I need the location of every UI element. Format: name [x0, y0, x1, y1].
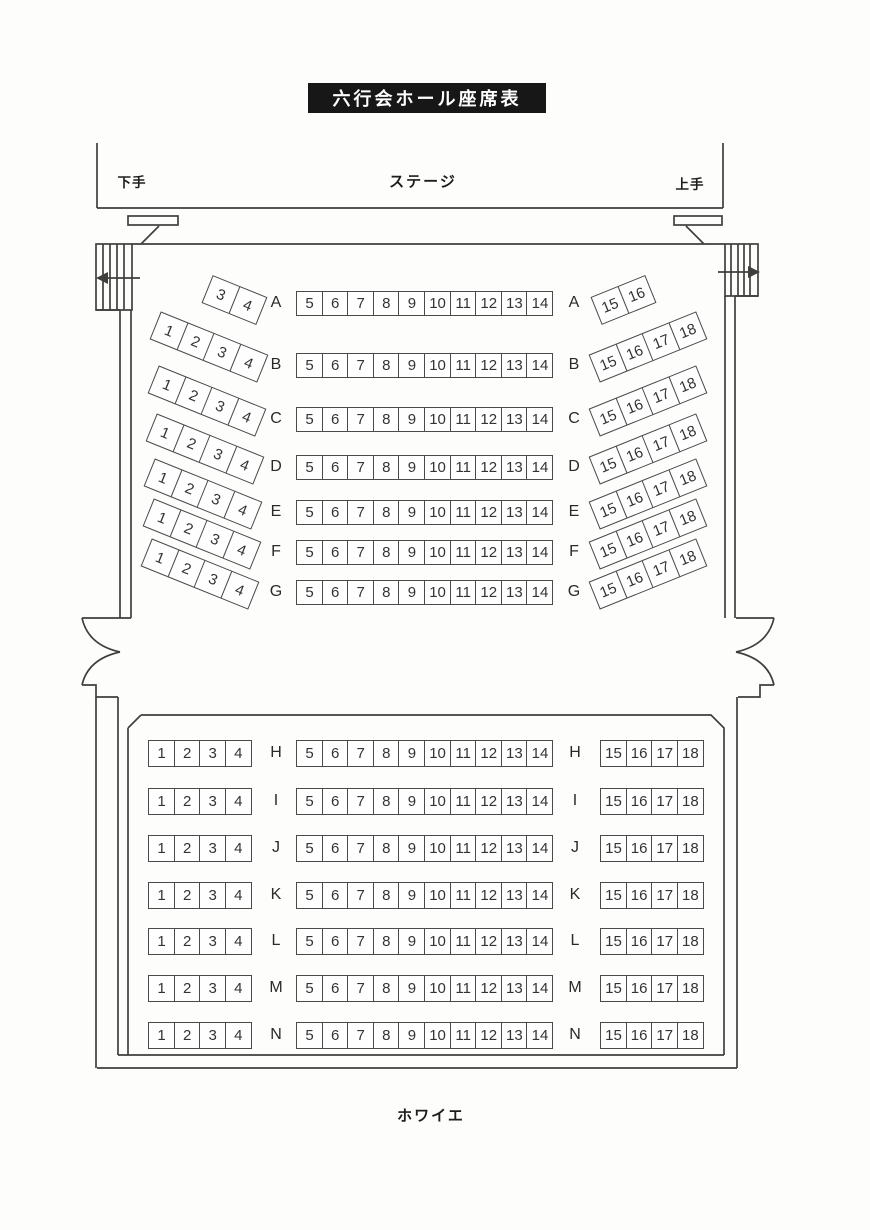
seat-D14: 14: [526, 455, 553, 480]
seat-K13: 13: [501, 882, 528, 909]
front-row-E-center-block: 567891011121314: [296, 500, 553, 525]
seat-E14: 14: [526, 500, 553, 525]
back-row-M-right-block: 15161718: [600, 975, 704, 1002]
seat-L10: 10: [424, 928, 451, 955]
seat-G6: 6: [322, 580, 349, 605]
seat-D9: 9: [398, 455, 425, 480]
back-row-N-left-block: 1234: [148, 1022, 252, 1049]
seat-N17: 17: [651, 1022, 678, 1049]
seat-M12: 12: [475, 975, 502, 1002]
seat-G5: 5: [296, 580, 323, 605]
seat-M3: 3: [199, 975, 226, 1002]
seat-G13: 13: [501, 580, 528, 605]
seat-B9: 9: [398, 353, 425, 378]
seat-J15: 15: [600, 835, 627, 862]
seat-I17: 17: [651, 788, 678, 815]
seat-K9: 9: [398, 882, 425, 909]
seat-L7: 7: [347, 928, 374, 955]
seat-M13: 13: [501, 975, 528, 1002]
seat-K4: 4: [225, 882, 252, 909]
seat-K17: 17: [651, 882, 678, 909]
seat-J9: 9: [398, 835, 425, 862]
front-row-B-center-block: 567891011121314: [296, 353, 553, 378]
back-row-H-left-block: 1234: [148, 740, 252, 767]
page-title: 六行会ホール座席表: [308, 83, 546, 113]
seat-K2: 2: [174, 882, 201, 909]
seat-B10: 10: [424, 353, 451, 378]
seat-C6: 6: [322, 407, 349, 432]
seat-M17: 17: [651, 975, 678, 1002]
row-label-H-left: H: [270, 744, 282, 762]
seat-N11: 11: [450, 1022, 477, 1049]
seat-B13: 13: [501, 353, 528, 378]
seat-H6: 6: [322, 740, 349, 767]
seat-G14: 14: [526, 580, 553, 605]
seat-G8: 8: [373, 580, 400, 605]
seat-E10: 10: [424, 500, 451, 525]
seat-F7: 7: [347, 540, 374, 565]
seat-E5: 5: [296, 500, 323, 525]
seat-K3: 3: [199, 882, 226, 909]
row-label-N-right: N: [569, 1026, 581, 1044]
seat-A5: 5: [296, 291, 323, 316]
seat-I1: 1: [148, 788, 175, 815]
seat-E6: 6: [322, 500, 349, 525]
seat-G11: 11: [450, 580, 477, 605]
row-label-B-right: B: [569, 356, 580, 374]
seat-I3: 3: [199, 788, 226, 815]
seat-G10: 10: [424, 580, 451, 605]
seat-L9: 9: [398, 928, 425, 955]
seat-F9: 9: [398, 540, 425, 565]
foyer-label: ホワイエ: [397, 1105, 465, 1126]
stairs-left: [96, 244, 140, 310]
back-row-J-center-block: 567891011121314: [296, 835, 553, 862]
seat-J10: 10: [424, 835, 451, 862]
seat-K6: 6: [322, 882, 349, 909]
seat-J17: 17: [651, 835, 678, 862]
seat-D11: 11: [450, 455, 477, 480]
seat-A10: 10: [424, 291, 451, 316]
seat-L5: 5: [296, 928, 323, 955]
seat-M10: 10: [424, 975, 451, 1002]
seat-H2: 2: [174, 740, 201, 767]
stage-label: ステージ: [389, 171, 457, 192]
row-label-L-right: L: [571, 932, 580, 950]
seat-I6: 6: [322, 788, 349, 815]
seat-M6: 6: [322, 975, 349, 1002]
back-row-I-left-block: 1234: [148, 788, 252, 815]
row-label-C-right: C: [568, 410, 580, 428]
seat-B11: 11: [450, 353, 477, 378]
door-left-swing: [82, 618, 131, 697]
front-row-C-center-block: 567891011121314: [296, 407, 553, 432]
seat-L16: 16: [626, 928, 653, 955]
row-label-H-right: H: [569, 744, 581, 762]
row-label-F-right: F: [569, 543, 579, 561]
auditorium-top-wall: [132, 226, 725, 244]
row-label-C-left: C: [270, 410, 282, 428]
seat-M8: 8: [373, 975, 400, 1002]
seat-N15: 15: [600, 1022, 627, 1049]
seat-I8: 8: [373, 788, 400, 815]
seat-J16: 16: [626, 835, 653, 862]
row-label-I-right: I: [573, 792, 577, 810]
row-label-J-right: J: [571, 839, 579, 857]
row-label-F-left: F: [271, 543, 281, 561]
seat-M18: 18: [677, 975, 704, 1002]
seat-C14: 14: [526, 407, 553, 432]
back-row-H-center-block: 567891011121314: [296, 740, 553, 767]
seat-N4: 4: [225, 1022, 252, 1049]
seat-B6: 6: [322, 353, 349, 378]
seat-K14: 14: [526, 882, 553, 909]
seat-B12: 12: [475, 353, 502, 378]
seat-K1: 1: [148, 882, 175, 909]
seat-K12: 12: [475, 882, 502, 909]
seat-N18: 18: [677, 1022, 704, 1049]
seat-K5: 5: [296, 882, 323, 909]
row-label-K-right: K: [570, 886, 581, 904]
seat-L13: 13: [501, 928, 528, 955]
back-row-H-right-block: 15161718: [600, 740, 704, 767]
back-row-M-center-block: 567891011121314: [296, 975, 553, 1002]
seat-K16: 16: [626, 882, 653, 909]
seat-J13: 13: [501, 835, 528, 862]
seat-M14: 14: [526, 975, 553, 1002]
row-label-J-left: J: [272, 839, 280, 857]
seat-J11: 11: [450, 835, 477, 862]
seat-A12: 12: [475, 291, 502, 316]
row-label-E-left: E: [271, 503, 282, 521]
seat-I10: 10: [424, 788, 451, 815]
seat-D8: 8: [373, 455, 400, 480]
row-label-A-right: A: [569, 294, 580, 312]
seat-I9: 9: [398, 788, 425, 815]
seat-E7: 7: [347, 500, 374, 525]
seat-L4: 4: [225, 928, 252, 955]
seat-I4: 4: [225, 788, 252, 815]
row-label-B-left: B: [271, 356, 282, 374]
seat-C10: 10: [424, 407, 451, 432]
seat-H15: 15: [600, 740, 627, 767]
seat-N7: 7: [347, 1022, 374, 1049]
seat-I5: 5: [296, 788, 323, 815]
door-right-swing: [736, 618, 774, 697]
front-row-D-center-block: 567891011121314: [296, 455, 553, 480]
seat-N3: 3: [199, 1022, 226, 1049]
seat-F5: 5: [296, 540, 323, 565]
seat-D5: 5: [296, 455, 323, 480]
seat-D13: 13: [501, 455, 528, 480]
row-label-G-left: G: [270, 583, 282, 601]
stage-right-label: 上手: [676, 173, 705, 193]
seat-L14: 14: [526, 928, 553, 955]
seat-A7: 7: [347, 291, 374, 316]
seat-C8: 8: [373, 407, 400, 432]
seat-C7: 7: [347, 407, 374, 432]
seat-N14: 14: [526, 1022, 553, 1049]
row-label-N-left: N: [270, 1026, 282, 1044]
seat-J3: 3: [199, 835, 226, 862]
back-row-K-left-block: 1234: [148, 882, 252, 909]
seat-F6: 6: [322, 540, 349, 565]
seat-H17: 17: [651, 740, 678, 767]
seat-I12: 12: [475, 788, 502, 815]
row-label-M-left: M: [269, 979, 282, 997]
seat-H8: 8: [373, 740, 400, 767]
seat-F11: 11: [450, 540, 477, 565]
seat-N5: 5: [296, 1022, 323, 1049]
seat-H1: 1: [148, 740, 175, 767]
seat-H14: 14: [526, 740, 553, 767]
back-row-K-center-block: 567891011121314: [296, 882, 553, 909]
seat-L17: 17: [651, 928, 678, 955]
seat-A11: 11: [450, 291, 477, 316]
seat-L8: 8: [373, 928, 400, 955]
seat-M5: 5: [296, 975, 323, 1002]
seat-L6: 6: [322, 928, 349, 955]
seat-B7: 7: [347, 353, 374, 378]
back-row-L-left-block: 1234: [148, 928, 252, 955]
seat-J14: 14: [526, 835, 553, 862]
seat-M1: 1: [148, 975, 175, 1002]
seat-J8: 8: [373, 835, 400, 862]
seat-M16: 16: [626, 975, 653, 1002]
seat-G12: 12: [475, 580, 502, 605]
seat-I16: 16: [626, 788, 653, 815]
stage-left-label: 下手: [118, 171, 147, 191]
seat-C9: 9: [398, 407, 425, 432]
seat-K11: 11: [450, 882, 477, 909]
seat-E8: 8: [373, 500, 400, 525]
seat-D12: 12: [475, 455, 502, 480]
seat-M15: 15: [600, 975, 627, 1002]
seat-B8: 8: [373, 353, 400, 378]
seat-H11: 11: [450, 740, 477, 767]
seat-N6: 6: [322, 1022, 349, 1049]
seat-J4: 4: [225, 835, 252, 862]
seat-H4: 4: [225, 740, 252, 767]
seat-J1: 1: [148, 835, 175, 862]
seat-L18: 18: [677, 928, 704, 955]
seat-G7: 7: [347, 580, 374, 605]
seat-L2: 2: [174, 928, 201, 955]
seat-J2: 2: [174, 835, 201, 862]
seat-F14: 14: [526, 540, 553, 565]
seat-M2: 2: [174, 975, 201, 1002]
seat-H18: 18: [677, 740, 704, 767]
back-row-I-center-block: 567891011121314: [296, 788, 553, 815]
seat-A6: 6: [322, 291, 349, 316]
stairs-right: [718, 244, 760, 296]
seat-M4: 4: [225, 975, 252, 1002]
row-label-D-left: D: [270, 458, 282, 476]
seat-H12: 12: [475, 740, 502, 767]
seat-N10: 10: [424, 1022, 451, 1049]
seat-M7: 7: [347, 975, 374, 1002]
front-row-G-center-block: 567891011121314: [296, 580, 553, 605]
back-row-I-right-block: 15161718: [600, 788, 704, 815]
back-row-J-right-block: 15161718: [600, 835, 704, 862]
stage-aprons: [128, 216, 722, 225]
seat-L12: 12: [475, 928, 502, 955]
seat-K8: 8: [373, 882, 400, 909]
seat-L11: 11: [450, 928, 477, 955]
seat-N1: 1: [148, 1022, 175, 1049]
front-row-F-center-block: 567891011121314: [296, 540, 553, 565]
seat-J6: 6: [322, 835, 349, 862]
back-row-M-left-block: 1234: [148, 975, 252, 1002]
seat-D7: 7: [347, 455, 374, 480]
back-row-K-right-block: 15161718: [600, 882, 704, 909]
seat-H3: 3: [199, 740, 226, 767]
seat-N13: 13: [501, 1022, 528, 1049]
seat-I18: 18: [677, 788, 704, 815]
seat-I2: 2: [174, 788, 201, 815]
row-label-G-right: G: [568, 583, 580, 601]
row-label-I-left: I: [274, 792, 278, 810]
seat-L3: 3: [199, 928, 226, 955]
seat-E12: 12: [475, 500, 502, 525]
seat-B14: 14: [526, 353, 553, 378]
seat-C12: 12: [475, 407, 502, 432]
seat-J5: 5: [296, 835, 323, 862]
back-row-J-left-block: 1234: [148, 835, 252, 862]
seat-I13: 13: [501, 788, 528, 815]
seat-N8: 8: [373, 1022, 400, 1049]
seat-K10: 10: [424, 882, 451, 909]
seat-G9: 9: [398, 580, 425, 605]
seat-F8: 8: [373, 540, 400, 565]
back-row-L-right-block: 15161718: [600, 928, 704, 955]
seat-A8: 8: [373, 291, 400, 316]
row-label-D-right: D: [568, 458, 580, 476]
seat-N9: 9: [398, 1022, 425, 1049]
seat-K15: 15: [600, 882, 627, 909]
seat-L1: 1: [148, 928, 175, 955]
seat-J12: 12: [475, 835, 502, 862]
seat-M9: 9: [398, 975, 425, 1002]
seat-H9: 9: [398, 740, 425, 767]
seat-J18: 18: [677, 835, 704, 862]
seat-H16: 16: [626, 740, 653, 767]
row-label-K-left: K: [271, 886, 282, 904]
seat-E11: 11: [450, 500, 477, 525]
back-row-N-center-block: 567891011121314: [296, 1022, 553, 1049]
seat-I11: 11: [450, 788, 477, 815]
seat-L15: 15: [600, 928, 627, 955]
seat-H5: 5: [296, 740, 323, 767]
seat-J7: 7: [347, 835, 374, 862]
back-row-L-center-block: 567891011121314: [296, 928, 553, 955]
seat-I14: 14: [526, 788, 553, 815]
seat-F12: 12: [475, 540, 502, 565]
back-row-N-right-block: 15161718: [600, 1022, 704, 1049]
seat-E9: 9: [398, 500, 425, 525]
row-label-L-left: L: [272, 932, 281, 950]
seat-D6: 6: [322, 455, 349, 480]
seat-N16: 16: [626, 1022, 653, 1049]
seat-F10: 10: [424, 540, 451, 565]
seating-chart-page: 六行会ホール座席表 ステージ 下手 上手 ホワイエ 34A56789101112…: [0, 0, 870, 1230]
seat-N2: 2: [174, 1022, 201, 1049]
row-label-E-right: E: [569, 503, 580, 521]
seat-F13: 13: [501, 540, 528, 565]
seat-I7: 7: [347, 788, 374, 815]
row-label-A-left: A: [271, 294, 282, 312]
seat-M11: 11: [450, 975, 477, 1002]
seat-N12: 12: [475, 1022, 502, 1049]
row-label-M-right: M: [568, 979, 581, 997]
seat-C11: 11: [450, 407, 477, 432]
seat-K7: 7: [347, 882, 374, 909]
seat-D10: 10: [424, 455, 451, 480]
front-row-A-center-block: 567891011121314: [296, 291, 553, 316]
seat-H10: 10: [424, 740, 451, 767]
seat-C5: 5: [296, 407, 323, 432]
seat-A13: 13: [501, 291, 528, 316]
seat-A14: 14: [526, 291, 553, 316]
seat-E13: 13: [501, 500, 528, 525]
seat-I15: 15: [600, 788, 627, 815]
seat-H7: 7: [347, 740, 374, 767]
seat-A9: 9: [398, 291, 425, 316]
seat-H13: 13: [501, 740, 528, 767]
seat-C13: 13: [501, 407, 528, 432]
seat-K18: 18: [677, 882, 704, 909]
seat-B5: 5: [296, 353, 323, 378]
